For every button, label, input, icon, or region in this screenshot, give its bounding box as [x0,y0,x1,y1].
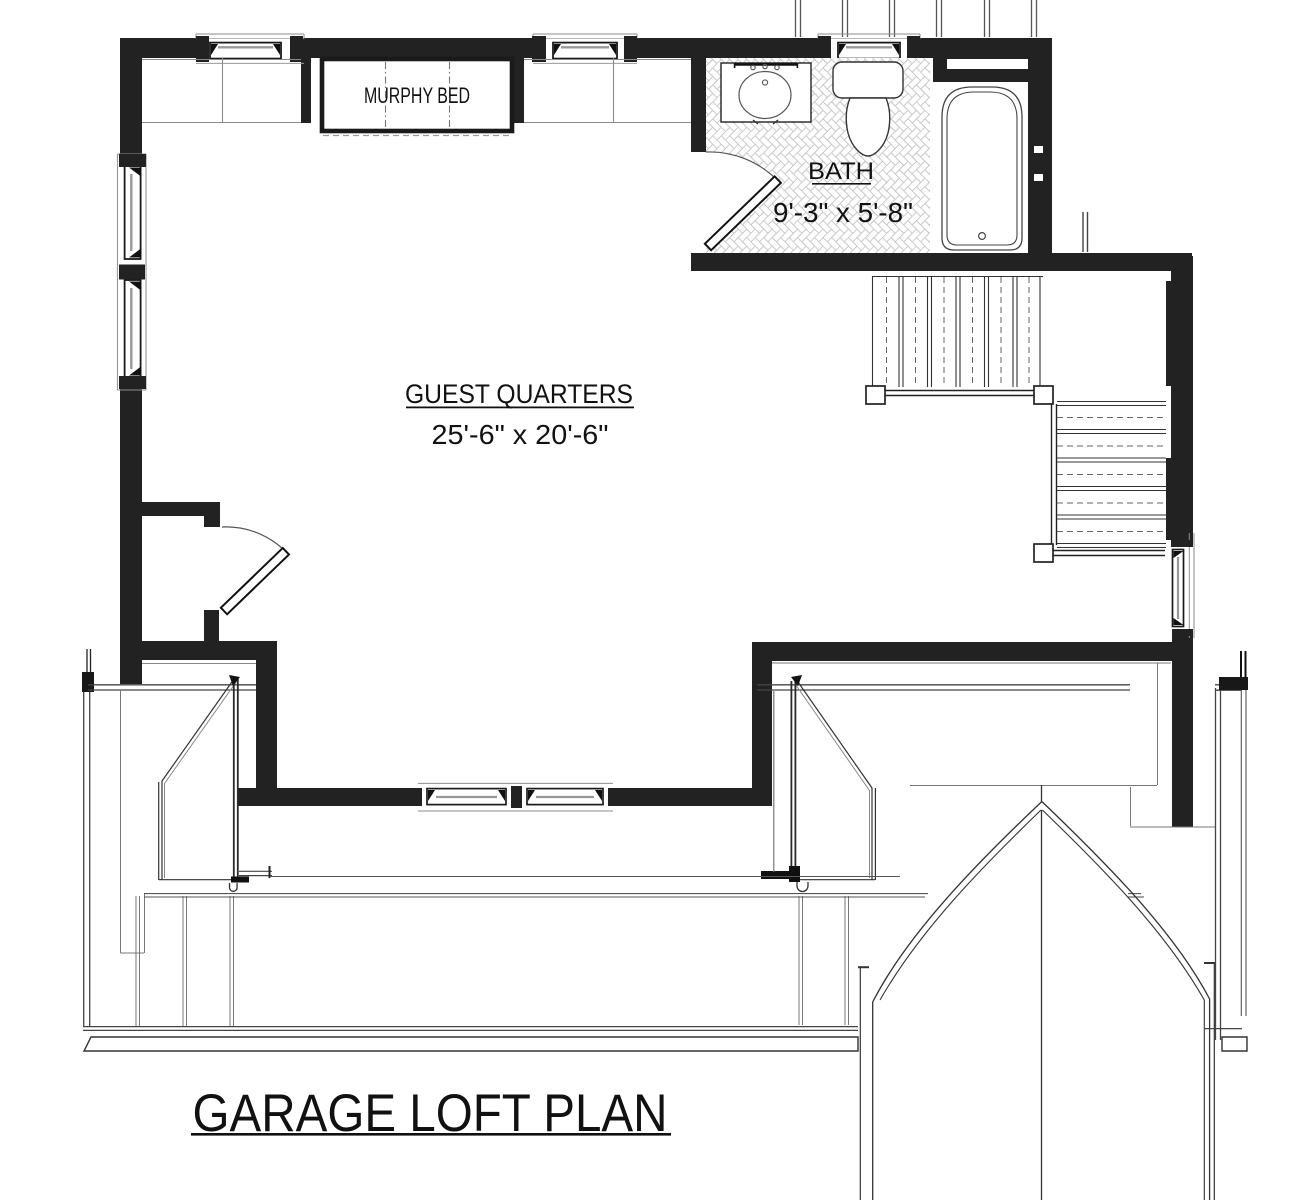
svg-text:9'-3" x 5'-8": 9'-3" x 5'-8" [773,197,913,228]
svg-text:GUEST QUARTERS: GUEST QUARTERS [405,379,633,409]
svg-text:BATH: BATH [808,158,874,185]
svg-text:MURPHY BED: MURPHY BED [364,83,470,108]
svg-text:25'-6" x 20'-6": 25'-6" x 20'-6" [432,419,609,450]
